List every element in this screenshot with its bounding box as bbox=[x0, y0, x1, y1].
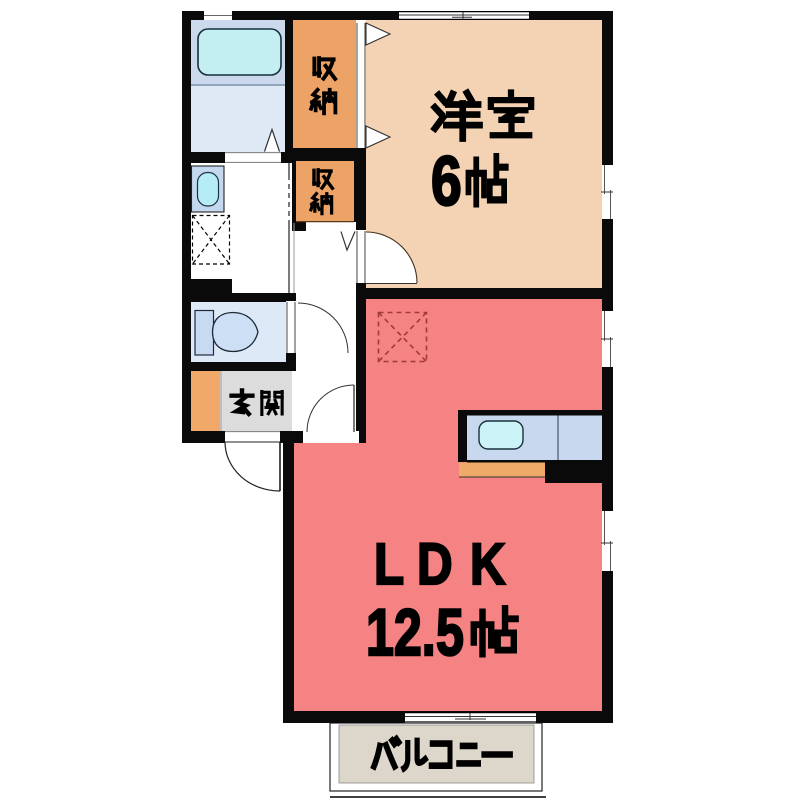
svg-text:6: 6 bbox=[431, 143, 462, 221]
svg-text:5: 5 bbox=[436, 596, 464, 669]
svg-text:D: D bbox=[417, 532, 453, 597]
svg-text:12.: 12. bbox=[366, 596, 436, 669]
svg-text:L: L bbox=[374, 532, 404, 597]
svg-text:K: K bbox=[470, 532, 506, 597]
